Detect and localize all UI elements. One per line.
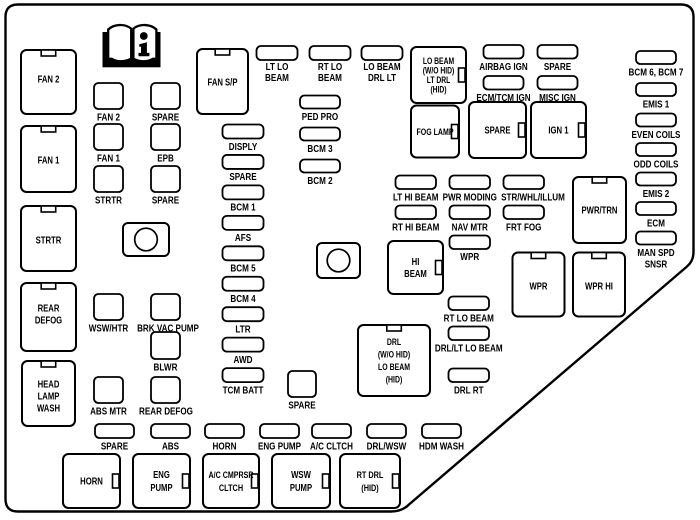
svg-text:(W/O HID): (W/O HID): [423, 65, 455, 75]
svg-text:IGN 1: IGN 1: [548, 126, 569, 137]
svg-text:SPARE: SPARE: [288, 399, 315, 411]
svg-text:LO BEAM: LO BEAM: [378, 362, 410, 372]
svg-text:WASH: WASH: [37, 404, 60, 415]
svg-text:SPARE: SPARE: [101, 440, 128, 452]
svg-text:DISPLY: DISPLY: [229, 141, 258, 153]
svg-text:MAN SPD: MAN SPD: [637, 247, 675, 259]
svg-text:PUMP: PUMP: [150, 483, 172, 494]
svg-text:PWR/TRN: PWR/TRN: [582, 206, 618, 217]
svg-text:FAN 2: FAN 2: [97, 111, 120, 123]
svg-text:RT LO BEAM: RT LO BEAM: [444, 312, 494, 324]
svg-text:FAN 1: FAN 1: [38, 156, 60, 167]
svg-text:SPARE: SPARE: [544, 61, 571, 73]
svg-text:DRL: DRL: [387, 337, 402, 347]
svg-text:BEAM: BEAM: [404, 269, 427, 280]
svg-text:BCM 4: BCM 4: [230, 293, 255, 305]
svg-text:AFS: AFS: [235, 232, 251, 244]
svg-text:WSW: WSW: [291, 470, 311, 481]
svg-text:HI: HI: [412, 257, 420, 268]
svg-text:HEAD: HEAD: [38, 380, 60, 391]
svg-text:PUMP: PUMP: [290, 483, 312, 494]
svg-text:LO BEAM: LO BEAM: [423, 56, 454, 66]
svg-text:WPR: WPR: [530, 282, 549, 293]
svg-text:LAMP: LAMP: [38, 392, 60, 403]
svg-text:BLWR: BLWR: [154, 361, 178, 373]
svg-text:REAR DEFOG: REAR DEFOG: [139, 405, 193, 417]
svg-text:BCM 1: BCM 1: [230, 202, 255, 214]
svg-text:EMIS 1: EMIS 1: [643, 98, 670, 110]
svg-text:STR/WHL/ILLUM: STR/WHL/ILLUM: [501, 191, 565, 203]
svg-text:STRTR: STRTR: [36, 236, 62, 247]
svg-text:DEFOG: DEFOG: [35, 316, 62, 327]
svg-text:REAR: REAR: [38, 304, 60, 315]
svg-text:BCM 3: BCM 3: [307, 143, 332, 155]
svg-text:EMIS 2: EMIS 2: [643, 188, 670, 200]
svg-text:FAN 1: FAN 1: [97, 152, 120, 164]
svg-text:EPB: EPB: [157, 152, 174, 164]
svg-text:PED PRO: PED PRO: [302, 111, 338, 123]
svg-text:(HID): (HID): [386, 375, 403, 385]
svg-text:RT HI BEAM: RT HI BEAM: [392, 221, 439, 233]
svg-text:BCM 2: BCM 2: [307, 175, 332, 187]
svg-text:DRL/WSW: DRL/WSW: [367, 440, 407, 452]
svg-text:FOG LAMP: FOG LAMP: [417, 127, 454, 138]
svg-text:(HID): (HID): [430, 84, 446, 94]
svg-text:STRTR: STRTR: [95, 194, 122, 206]
svg-text:BEAM: BEAM: [318, 72, 342, 84]
svg-text:AWD: AWD: [234, 354, 253, 366]
svg-text:BCM 5: BCM 5: [230, 263, 255, 275]
svg-text:WSW/HTR: WSW/HTR: [89, 322, 129, 334]
svg-text:DRL RT: DRL RT: [454, 384, 484, 396]
svg-text:ECM: ECM: [647, 217, 665, 229]
svg-text:TCM BATT: TCM BATT: [223, 384, 264, 396]
svg-text:SPARE: SPARE: [152, 194, 179, 206]
svg-text:NAV MTR: NAV MTR: [452, 221, 489, 233]
svg-text:LT HI BEAM: LT HI BEAM: [393, 191, 439, 203]
svg-text:BCM 6, BCM 7: BCM 6, BCM 7: [629, 66, 684, 78]
svg-text:WPR: WPR: [460, 251, 479, 263]
svg-text:SNSR: SNSR: [645, 258, 668, 270]
svg-text:A/C CLTCH: A/C CLTCH: [310, 440, 353, 452]
svg-text:PWR MODING: PWR MODING: [443, 191, 497, 203]
svg-text:LT DRL: LT DRL: [427, 75, 451, 85]
svg-text:WPR HI: WPR HI: [585, 282, 613, 293]
svg-text:(W/O HID): (W/O HID): [378, 350, 410, 360]
svg-text:SPARE: SPARE: [485, 126, 511, 137]
svg-text:DRL/LT LO BEAM: DRL/LT LO BEAM: [435, 342, 503, 354]
svg-text:(HID): (HID): [361, 483, 378, 494]
svg-text:ENG PUMP: ENG PUMP: [258, 440, 301, 452]
svg-text:EVEN COILS: EVEN COILS: [632, 129, 681, 141]
svg-text:DRL LT: DRL LT: [368, 72, 397, 84]
svg-text:ENG: ENG: [153, 470, 170, 481]
svg-text:FAN 2: FAN 2: [38, 75, 60, 86]
svg-text:SPARE: SPARE: [229, 171, 256, 183]
svg-text:BEAM: BEAM: [265, 72, 289, 84]
svg-text:RT DRL: RT DRL: [357, 470, 384, 481]
svg-text:SPARE: SPARE: [152, 111, 179, 123]
svg-text:ABS MTR: ABS MTR: [90, 405, 127, 417]
svg-text:HORN: HORN: [213, 440, 237, 452]
svg-text:AIRBAG IGN: AIRBAG IGN: [479, 61, 528, 73]
svg-text:ABS: ABS: [162, 440, 179, 452]
svg-text:CLTCH: CLTCH: [219, 483, 243, 494]
svg-text:A/C CMPRSR: A/C CMPRSR: [209, 470, 254, 481]
svg-text:LTR: LTR: [235, 324, 251, 336]
svg-text:HORN: HORN: [80, 477, 103, 488]
svg-text:HDM WASH: HDM WASH: [419, 440, 464, 452]
svg-text:ODD COILS: ODD COILS: [634, 158, 679, 170]
svg-text:FRT FOG: FRT FOG: [506, 221, 541, 233]
svg-text:FAN S/P: FAN S/P: [208, 78, 238, 89]
